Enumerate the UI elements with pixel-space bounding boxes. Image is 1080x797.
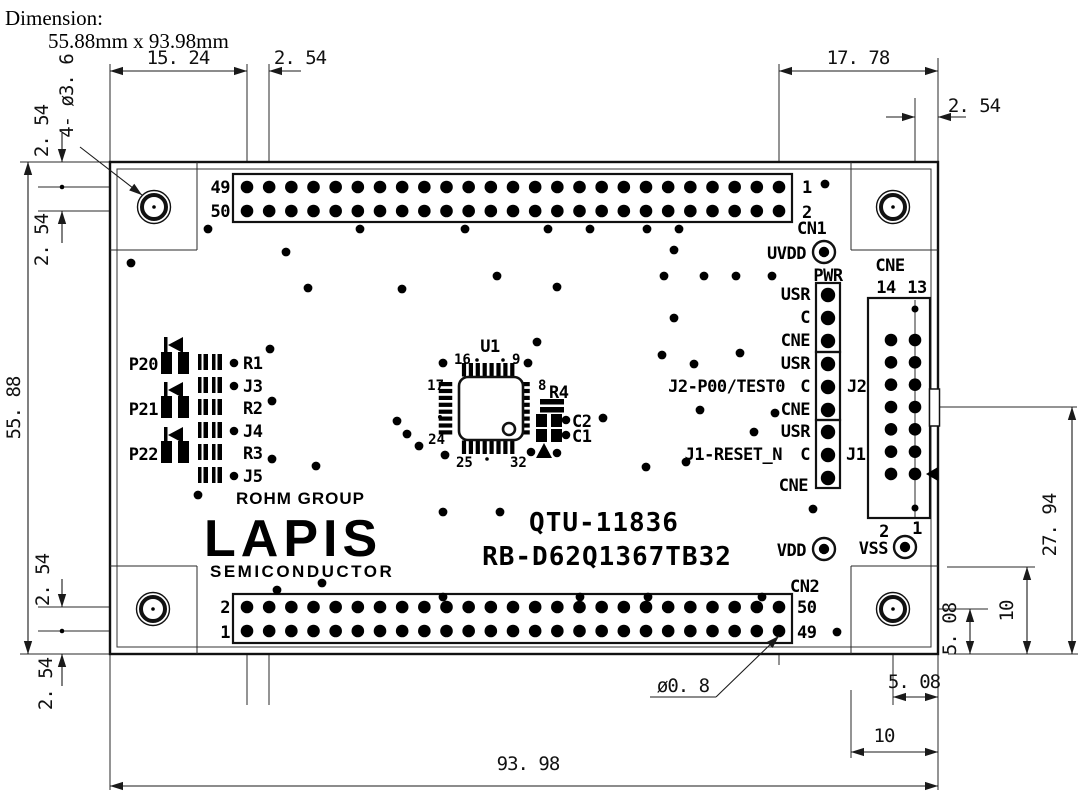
cn1-label: CN1 (797, 219, 826, 239)
p22-label: P22 (129, 445, 158, 465)
drawing-title: Dimension: (5, 6, 103, 30)
uvdd-pad (813, 241, 835, 263)
p21-label: P21 (129, 400, 158, 420)
vss-pad (894, 536, 916, 558)
drawing-svg: Dimension: 55.88mm x 93.98mm (0, 0, 1080, 797)
mounting-hole-top-left (138, 191, 171, 224)
dim-2-54-bottom-left-2: 2. 54 (35, 657, 57, 710)
j1-cne-label: CNE (779, 476, 808, 496)
j1-signal-label: J1-RESET_N (685, 445, 783, 465)
dim-55-88: 55. 88 (3, 376, 25, 439)
cn2-pin2-label: 2 (220, 598, 230, 618)
dim-5-08-right: 5. 08 (939, 602, 961, 655)
lapis-logo: LAPIS (204, 510, 382, 568)
j5-label: J5 (243, 467, 263, 487)
dim-2-54-top-left: 2. 54 (274, 47, 327, 69)
r2-label: R2 (243, 399, 262, 419)
pwr-label: PWR (813, 266, 843, 286)
u1-pin9-label: 9 (512, 352, 520, 368)
cne-pin13-label: 13 (907, 278, 927, 298)
j4-label: J4 (243, 422, 263, 442)
cn2-label: CN2 (790, 577, 819, 597)
pwr-header-pins (821, 288, 835, 348)
r3-label: R3 (243, 444, 263, 464)
j2-header-pins (821, 357, 835, 417)
u1-pin32-label: 32 (510, 455, 527, 471)
j1-usr-label: USR (781, 422, 811, 442)
j1-c-label: C (800, 445, 810, 465)
dim-10-right: 10 (996, 600, 1018, 621)
dim-2-54-bottom-left-1: 2. 54 (32, 553, 54, 606)
dim-hole-0-8: ø0. 8 (657, 675, 710, 697)
j2-signal-label: J2-P00/TEST0 (668, 377, 785, 397)
r1-label: R1 (243, 354, 263, 374)
mounting-hole-top-right (877, 191, 910, 224)
cne-pin14-label: 14 (876, 278, 896, 298)
part-number-label: RB-D62Q1367TB32 (482, 542, 732, 572)
dim-2-54-left-2: 2. 54 (31, 213, 53, 266)
pwr-cne-label: CNE (781, 331, 810, 351)
j2-c-label: C (800, 377, 810, 397)
u1-pin25-label: 25 (456, 455, 473, 471)
model-number-label: QTU-11836 (529, 508, 679, 538)
vdd-label: VDD (777, 541, 806, 561)
pcb-dimension-drawing: Dimension: 55.88mm x 93.98mm (0, 0, 1080, 797)
semiconductor-label: SEMICONDUCTOR (210, 562, 394, 581)
mounting-hole-bottom-right (877, 593, 910, 626)
cne-pin1-label: 1 (912, 519, 922, 539)
j3-label: J3 (243, 377, 263, 397)
p20-label: P20 (129, 355, 158, 375)
pwr-c-label: C (800, 308, 810, 328)
rohm-group-label: ROHM GROUP (236, 489, 365, 508)
r4-label: R4 (549, 383, 569, 403)
u1-pin8-label: 8 (538, 378, 546, 394)
dim-93-98: 93. 98 (497, 753, 560, 775)
dim-27-94: 27. 94 (1039, 493, 1061, 556)
u1-pin17-label: 17 (427, 378, 444, 394)
j1-label: J1 (846, 445, 866, 465)
dim-5-08-bottom: 5. 08 (888, 671, 941, 693)
cn1-pin1-label: 1 (802, 178, 812, 198)
dim-2-54-top-right: 2. 54 (948, 95, 1001, 117)
cn1-pin49-label: 49 (211, 178, 231, 198)
j1-header-pins (821, 425, 835, 485)
dim-2-54-left-1: 2. 54 (31, 104, 53, 157)
j2-cne-label: CNE (781, 400, 810, 420)
dim-17-78: 17. 78 (827, 47, 890, 69)
cn2-pin1-label: 1 (220, 623, 230, 643)
c1-label: C1 (572, 427, 592, 447)
vdd-pad (813, 538, 835, 560)
j2-usr-label: USR (781, 354, 811, 374)
u1-label: U1 (480, 337, 500, 357)
uvdd-label: UVDD (767, 244, 806, 264)
cn2-pin49-label: 49 (797, 623, 817, 643)
u1-pin16-label: 16 (454, 352, 471, 368)
board-edge-tab (930, 389, 940, 426)
mounting-hole-bottom-left (137, 593, 170, 626)
pwr-usr-label: USR (781, 285, 811, 305)
vss-label: VSS (859, 539, 888, 559)
cn1-pin50-label: 50 (211, 202, 231, 222)
dim-10-bottom: 10 (874, 725, 895, 747)
dim-hole-3-6: 4- ø3. 6 (56, 54, 78, 138)
cn2-pin50-label: 50 (797, 598, 817, 618)
u1-pin1-marker (503, 423, 515, 435)
u1-pin24-label: 24 (428, 432, 445, 448)
cne-label: CNE (875, 256, 904, 276)
j2-label: J2 (847, 377, 866, 397)
dim-15-24: 15. 24 (147, 47, 210, 69)
